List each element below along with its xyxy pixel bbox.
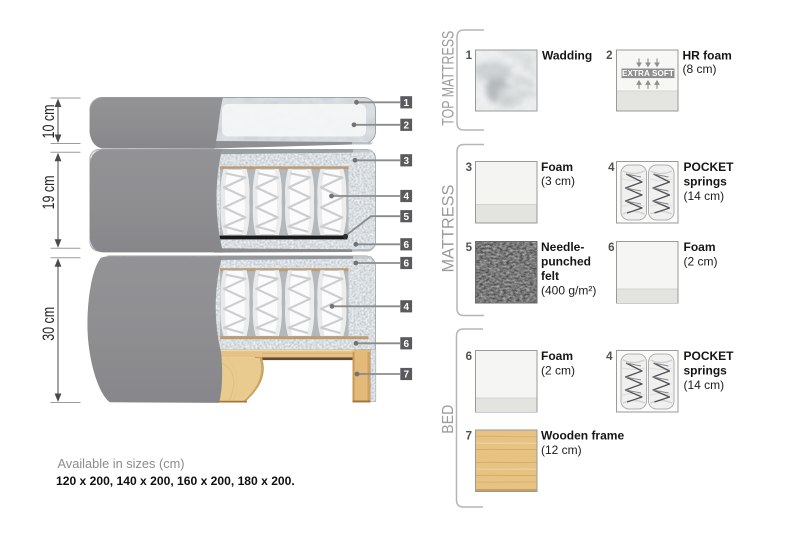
svg-text:2: 2	[606, 50, 612, 62]
svg-text:(2 cm): (2 cm)	[541, 364, 575, 378]
svg-text:7: 7	[404, 370, 410, 381]
svg-text:6: 6	[466, 351, 472, 363]
svg-text:1: 1	[466, 50, 473, 62]
svg-text:Wadding: Wadding	[542, 49, 592, 63]
svg-text:(3 cm): (3 cm)	[541, 174, 575, 188]
svg-text:3: 3	[466, 162, 472, 174]
svg-text:felt: felt	[541, 269, 559, 283]
svg-text:POCKET: POCKET	[684, 349, 735, 363]
svg-text:(2 cm): (2 cm)	[684, 255, 718, 269]
svg-text:BED: BED	[440, 405, 457, 434]
svg-text:1: 1	[404, 98, 410, 109]
svg-text:(12 cm): (12 cm)	[541, 443, 582, 457]
svg-text:Foam: Foam	[684, 240, 716, 254]
svg-text:Wooden frame: Wooden frame	[541, 429, 624, 443]
svg-text:EXTRA SOFT: EXTRA SOFT	[622, 69, 674, 78]
svg-text:5: 5	[404, 212, 410, 223]
svg-text:punched: punched	[541, 255, 591, 269]
svg-text:5: 5	[466, 242, 473, 254]
svg-text:7: 7	[466, 431, 472, 443]
svg-text:6: 6	[404, 259, 410, 270]
svg-text:(8 cm): (8 cm)	[683, 62, 717, 76]
svg-text:(14 cm): (14 cm)	[684, 378, 725, 392]
svg-text:(14 cm): (14 cm)	[684, 189, 725, 203]
svg-text:10 cm: 10 cm	[40, 105, 58, 139]
svg-text:4: 4	[404, 302, 410, 313]
svg-text:30 cm: 30 cm	[40, 307, 58, 341]
svg-text:POCKET: POCKET	[684, 160, 735, 174]
svg-text:springs: springs	[684, 364, 728, 378]
svg-text:6: 6	[404, 339, 410, 350]
svg-text:Needle-: Needle-	[541, 240, 584, 254]
svg-text:HR foam: HR foam	[683, 49, 732, 63]
svg-text:2: 2	[404, 121, 410, 132]
svg-text:4: 4	[404, 192, 410, 203]
svg-text:TOP MATTRESS: TOP MATTRESS	[439, 31, 458, 126]
svg-text:MATTRESS: MATTRESS	[439, 185, 458, 273]
svg-text:(400 g/m²): (400 g/m²)	[541, 284, 596, 298]
svg-text:4: 4	[608, 162, 615, 174]
svg-text:Foam: Foam	[541, 160, 573, 174]
svg-text:Available in sizes (cm): Available in sizes (cm)	[58, 456, 185, 471]
svg-text:6: 6	[608, 242, 614, 254]
svg-text:Foam: Foam	[541, 349, 573, 363]
svg-text:springs: springs	[684, 175, 728, 189]
svg-text:19 cm: 19 cm	[40, 176, 58, 210]
svg-text:3: 3	[404, 156, 410, 167]
svg-text:120 x 200, 140 x 200, 160 x 20: 120 x 200, 140 x 200, 160 x 200, 180 x 2…	[56, 474, 295, 488]
svg-text:4: 4	[606, 351, 613, 363]
svg-text:6: 6	[404, 240, 410, 251]
